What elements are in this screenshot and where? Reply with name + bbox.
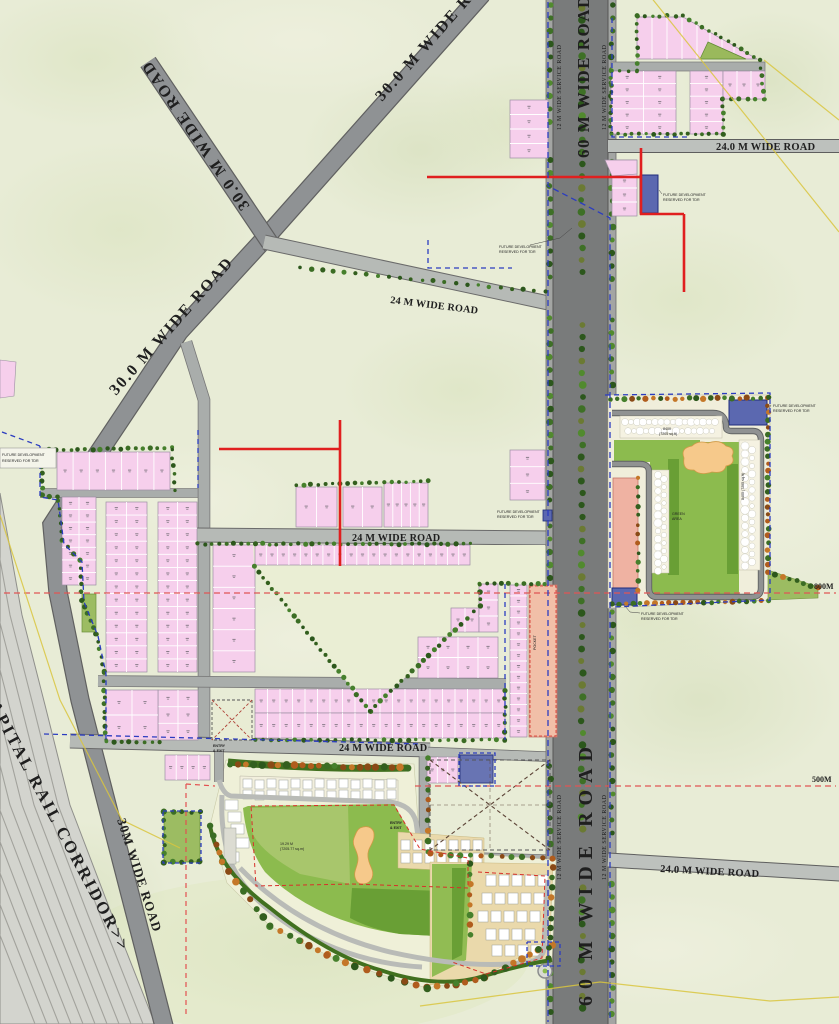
svg-text:8400 (7205 sq.ft): 8400 (7205 sq.ft) (741, 473, 745, 500)
svg-text:RESERVED FOR TDR: RESERVED FOR TDR (499, 250, 536, 254)
svg-text:AREA: AREA (672, 517, 682, 521)
svg-text:12 M WIDE SERVICE ROAD: 12 M WIDE SERVICE ROAD (602, 794, 608, 880)
svg-text:RESERVED FOR TDR: RESERVED FOR TDR (497, 515, 534, 519)
svg-text:FUTURE DEVELOPMENT: FUTURE DEVELOPMENT (2, 453, 46, 457)
svg-text:RESERVED FOR TDR: RESERVED FOR TDR (773, 409, 810, 413)
svg-text:FUTURE DEVELOPMENT: FUTURE DEVELOPMENT (497, 510, 541, 514)
svg-text:FUTURE DEVELOPMENT: FUTURE DEVELOPMENT (773, 404, 817, 408)
svg-text:POCKET: POCKET (533, 634, 537, 650)
svg-text:ENTRY: ENTRY (213, 744, 226, 748)
svg-text:500M: 500M (812, 775, 832, 784)
svg-text:ENTRY: ENTRY (390, 821, 403, 825)
svg-text:800M: 800M (814, 582, 834, 591)
svg-text:12 M WIDE SERVICE ROAD: 12 M WIDE SERVICE ROAD (602, 44, 608, 130)
svg-text:24 M WIDE ROAD: 24 M WIDE ROAD (339, 743, 427, 754)
svg-text:RESERVED FOR TDR: RESERVED FOR TDR (663, 198, 700, 202)
svg-text:(7205.77 sq.m): (7205.77 sq.m) (280, 847, 304, 851)
svg-text:60 M WIDE ROAD: 60 M WIDE ROAD (574, 0, 593, 158)
svg-text:24 M WIDE ROAD: 24 M WIDE ROAD (352, 533, 440, 544)
svg-text:12 M WIDE SERVICE ROAD: 12 M WIDE SERVICE ROAD (557, 44, 563, 130)
svg-text:12 M WIDE SERVICE ROAD: 12 M WIDE SERVICE ROAD (557, 794, 563, 880)
svg-text:60 M WIDE ROAD: 60 M WIDE ROAD (575, 740, 597, 1006)
svg-text:(7205 sq.ft): (7205 sq.ft) (659, 432, 677, 436)
svg-text:24.0 M WIDE ROAD: 24.0 M WIDE ROAD (716, 142, 815, 153)
svg-text:FUTURE DEVELOPMENT: FUTURE DEVELOPMENT (663, 193, 707, 197)
svg-text:FUTURE DEVELOPMENT: FUTURE DEVELOPMENT (499, 245, 543, 249)
svg-text:RESERVED FOR TDR: RESERVED FOR TDR (641, 617, 678, 621)
svg-text:8400: 8400 (663, 427, 671, 431)
svg-text:FUTURE DEVELOPMENT: FUTURE DEVELOPMENT (641, 612, 685, 616)
svg-text:GREEN: GREEN (672, 512, 685, 516)
svg-text:& EXIT: & EXIT (213, 749, 225, 753)
svg-text:RESERVED FOR TDR: RESERVED FOR TDR (2, 459, 39, 463)
svg-text:19.29 M: 19.29 M (280, 842, 293, 846)
svg-text:& EXIT: & EXIT (390, 826, 402, 830)
